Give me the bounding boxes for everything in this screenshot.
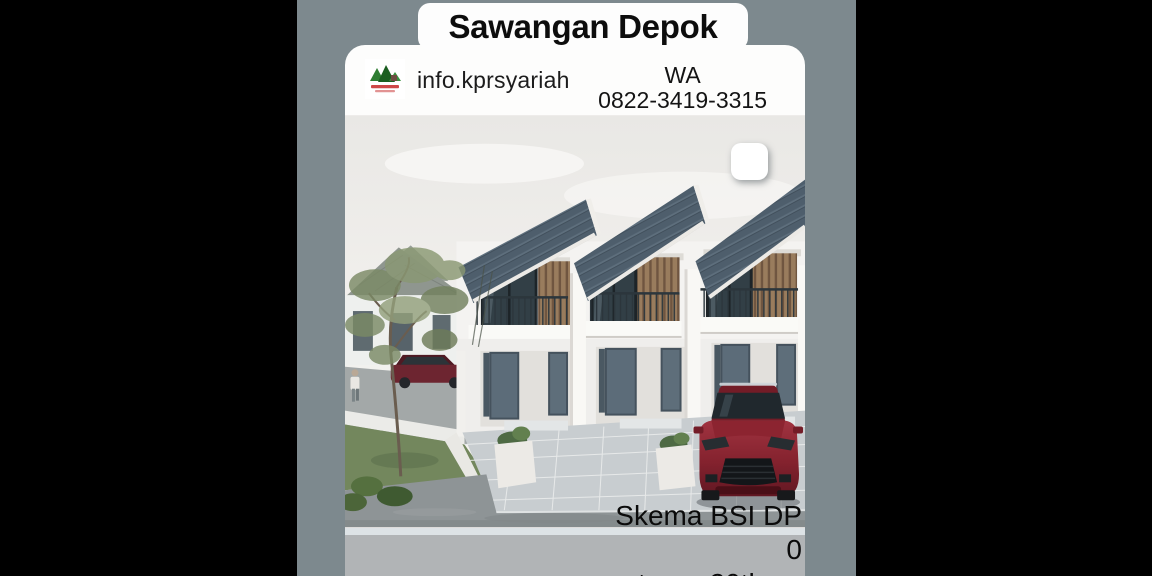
post-card: info.kprsyariah WA 0822-3419-3315 xyxy=(345,45,805,576)
story-canvas: info.kprsyariah WA 0822-3419-3315 xyxy=(0,0,1152,576)
account-handle: info.kprsyariah xyxy=(417,67,570,94)
location-title-chip: Sawangan Depok xyxy=(418,3,748,50)
whatsapp-contact: WA 0822-3419-3315 xyxy=(598,63,767,113)
offer-caption-line2: tenor 20th xyxy=(600,567,802,576)
kprsyariah-logo-icon xyxy=(365,59,405,99)
offer-caption-line1: Skema BSI DP 0 xyxy=(600,499,802,567)
rounded-square-sticker[interactable] xyxy=(731,143,768,180)
offer-caption: Skema BSI DP 0 tenor 20th xyxy=(600,499,802,576)
whatsapp-label: WA xyxy=(598,63,767,88)
whatsapp-number: 0822-3419-3315 xyxy=(598,88,767,113)
post-header: info.kprsyariah WA 0822-3419-3315 xyxy=(345,45,805,115)
